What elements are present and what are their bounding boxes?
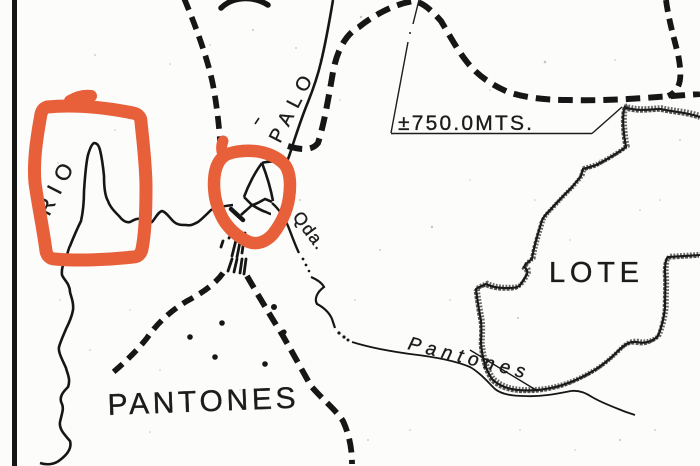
svg-text:±750.0MTS.: ±750.0MTS. <box>398 112 532 135</box>
